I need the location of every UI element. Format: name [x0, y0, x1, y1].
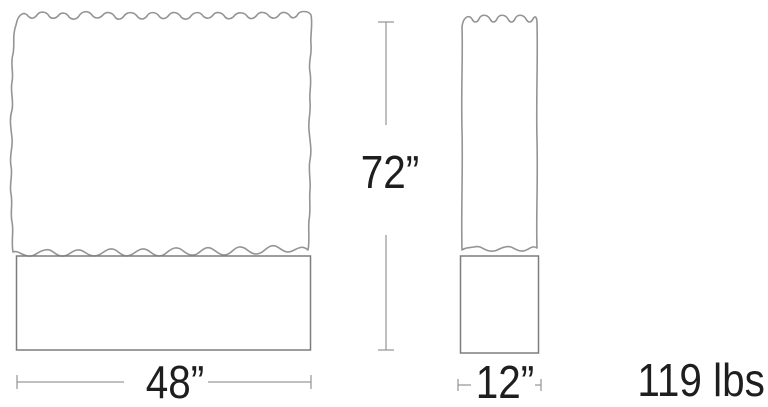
front-hedge-outline [10, 12, 311, 257]
width-dimension-label: 48” [146, 359, 205, 405]
front-base-outline [17, 256, 311, 350]
depth-dimension-label: 12” [476, 359, 535, 405]
dimension-diagram: 72” 48” 12” 119 lbs [0, 0, 768, 407]
height-dimension-label: 72” [361, 149, 420, 195]
diagram-shapes [0, 0, 768, 407]
side-hedge-outline [462, 15, 538, 251]
side-base-outline [461, 256, 539, 353]
weight-label: 119 lbs [637, 357, 765, 403]
